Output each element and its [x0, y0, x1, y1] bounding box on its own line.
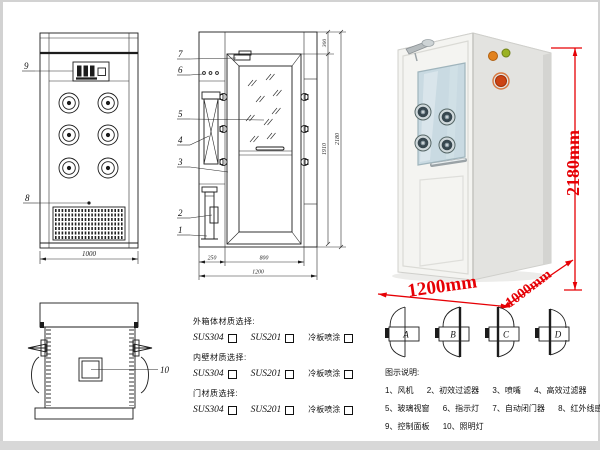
nozzles-front: [59, 93, 118, 178]
section-view-drawing: 7 6 5 4 3 2 1: [176, 24, 354, 290]
side-latch-right: [133, 340, 152, 393]
legend-item: 4、高效过滤器: [534, 386, 586, 395]
door-swing-options: A B C D: [385, 301, 575, 363]
nozzle-icon: [59, 93, 79, 113]
door-option-b: B: [435, 301, 475, 363]
door-handle: [256, 147, 284, 150]
legend-title: 图示说明:: [385, 367, 595, 378]
product-photo: 2180mm 1200mm 1000mm: [368, 8, 600, 310]
dim-1000-label: 1000: [82, 250, 97, 258]
door-option-c: C: [485, 301, 525, 363]
legend-line-3: 9、控制面板 10、照明灯: [385, 421, 595, 432]
nozzle-icon: [59, 158, 79, 178]
legend: 图示说明: 1、风机 2、初效过滤器 3、喷嘴 4、高效过滤器 5、玻璃视窗 6…: [385, 367, 595, 439]
callout-1-label: 1: [178, 225, 183, 235]
door-option-b-label: B: [450, 330, 456, 340]
callout-9: 9: [22, 61, 73, 71]
callout-2-label: 2: [178, 208, 183, 218]
return-air-grille: [53, 207, 125, 240]
door-option-a-label: A: [402, 330, 409, 340]
material-option-label: SUS304: [193, 333, 224, 343]
callout-6-label: 6: [178, 65, 183, 75]
material-option-label: SUS201: [251, 369, 282, 379]
door-option-c-label: C: [503, 330, 510, 340]
legend-item: 6、指示灯: [443, 404, 479, 413]
material-checkbox[interactable]: [285, 406, 294, 415]
legend-item: 8、红外线感应器: [558, 404, 600, 413]
callout-9-label: 9: [24, 61, 29, 71]
material-option-label: SUS304: [193, 369, 224, 379]
dim-2180mm-label: 2180mm: [563, 130, 583, 196]
blower-unit: [201, 187, 218, 239]
material-group-outer: 外箱体材质选择: SUS304 SUS201 冷板喷涂: [193, 316, 383, 343]
dim-250-label: 250: [208, 256, 217, 262]
door-option-d: D: [535, 301, 575, 363]
spec-sheet-page: 9 8 1000: [0, 0, 600, 450]
material-group-title: 门材质选择:: [193, 388, 383, 399]
legend-item: 9、控制面板: [385, 422, 429, 431]
legend-item: 2、初效过滤器: [427, 386, 479, 395]
callout-8-label: 8: [25, 193, 30, 203]
horizontal-dimensions: 250 800 1200: [199, 247, 317, 280]
material-checkbox[interactable]: [228, 370, 237, 379]
material-option-label: 冷板喷涂: [308, 370, 340, 378]
material-group-inner: 内壁材质选择: SUS304 SUS201 冷板喷涂: [193, 352, 383, 379]
side-latch-left: [28, 340, 47, 393]
lamp-green: [502, 49, 510, 57]
top-view-drawing: 10: [25, 293, 200, 433]
material-checkbox[interactable]: [228, 406, 237, 415]
nozzle-icon: [98, 125, 118, 145]
control-panel: [73, 62, 109, 81]
material-checkbox[interactable]: [344, 370, 353, 379]
callout-4-label: 4: [178, 135, 183, 145]
vertical-dimensions: 300 1910 2180: [301, 30, 346, 249]
callout-8: 8: [23, 193, 91, 205]
dim-1200-label: 1200: [252, 270, 264, 276]
material-option-label: 冷板喷涂: [308, 334, 340, 342]
material-option-label: SUS201: [251, 333, 282, 343]
dim-2180-label: 2180: [335, 133, 341, 145]
legend-line-2: 5、玻璃视窗 6、指示灯 7、自动闭门器 8、红外线感应器: [385, 403, 595, 414]
nozzle-icon: [59, 125, 79, 145]
door-section: [220, 51, 308, 244]
page-border-left: [0, 0, 3, 450]
callout-7-label: 7: [178, 49, 183, 59]
front-view-drawing: 9 8 1000: [18, 26, 160, 274]
nozzle-icon: [98, 158, 118, 178]
callout-3-label: 3: [177, 157, 183, 167]
glass-hatch: [246, 74, 282, 142]
material-group-title: 外箱体材质选择:: [193, 316, 383, 327]
legend-item: 10、照明灯: [443, 422, 484, 431]
material-checkbox[interactable]: [285, 334, 294, 343]
material-checkbox[interactable]: [344, 406, 353, 415]
lamp-orange: [489, 52, 498, 61]
legend-item: 7、自动闭门器: [492, 404, 544, 413]
legend-item: 1、风机: [385, 386, 413, 395]
callout-10-label: 10: [160, 365, 170, 375]
dim-1910-label: 1910: [322, 143, 328, 155]
legend-line-1: 1、风机 2、初效过滤器 3、喷嘴 4、高效过滤器: [385, 385, 595, 396]
dim-300-label: 300: [322, 39, 328, 49]
legend-item: 3、喷嘴: [492, 386, 520, 395]
door-closer: [234, 51, 251, 60]
filter-unit: [202, 92, 220, 164]
nozzle-icon: [415, 104, 431, 120]
door-option-d-label: D: [554, 330, 562, 340]
material-option-label: 冷板喷涂: [308, 406, 340, 414]
callout-5-label: 5: [178, 109, 183, 119]
material-group-title: 内壁材质选择:: [193, 352, 383, 363]
page-border-top: [0, 0, 600, 2]
booth-structure: [199, 32, 317, 247]
page-border-bottom: [0, 441, 600, 450]
nozzle-icon: [439, 109, 455, 125]
material-option-label: SUS304: [193, 405, 224, 415]
legend-item: 5、玻璃视窗: [385, 404, 429, 413]
nozzle-icon: [415, 135, 431, 151]
material-option-label: SUS201: [251, 405, 282, 415]
emergency-button: [496, 76, 507, 87]
material-checkbox[interactable]: [228, 334, 237, 343]
indicator-lights-icon: [203, 72, 219, 75]
section-callouts: 7 6 5 4 3 2 1: [177, 49, 264, 236]
material-group-door: 门材质选择: SUS304 SUS201 冷板喷涂: [193, 388, 383, 415]
nozzle-icon: [439, 137, 455, 153]
dim-800-label: 800: [260, 256, 269, 262]
material-checkbox[interactable]: [285, 370, 294, 379]
nozzle-icon: [98, 93, 118, 113]
door-option-a: A: [385, 301, 425, 363]
dimension-2180mm: 2180mm: [551, 48, 583, 290]
material-checkbox[interactable]: [344, 334, 353, 343]
material-selection: 外箱体材质选择: SUS304 SUS201 冷板喷涂 内壁材质选择: SUS3…: [193, 316, 383, 424]
dimension-1000: 1000: [40, 250, 138, 264]
